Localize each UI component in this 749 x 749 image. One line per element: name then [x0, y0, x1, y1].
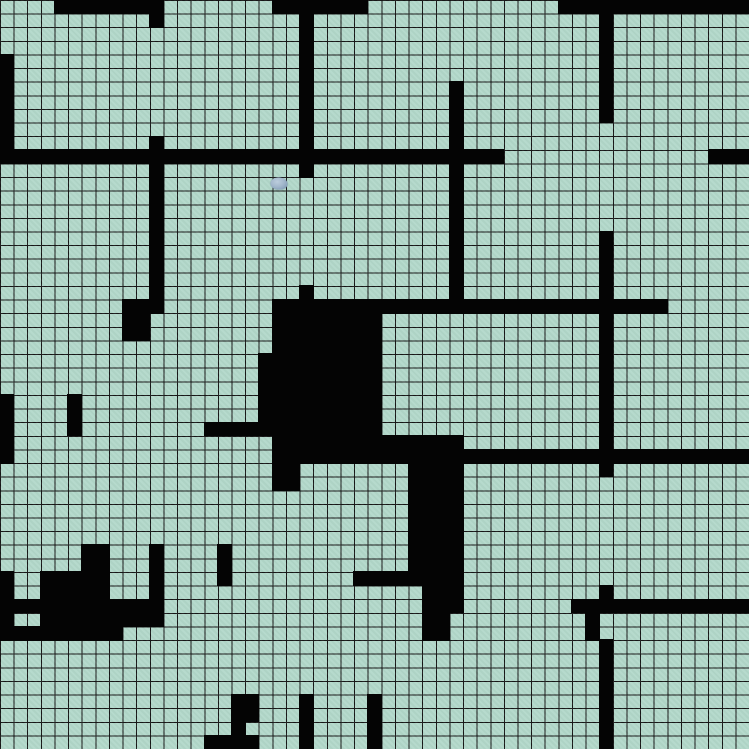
wall-block [149, 258, 164, 273]
wall-block [367, 721, 382, 736]
wall-block [299, 54, 314, 69]
wall-block [599, 231, 614, 246]
wall-block [408, 531, 464, 546]
wall-block [122, 313, 150, 328]
wall-block [0, 95, 14, 110]
wall-block [449, 176, 464, 191]
wall-block [408, 558, 464, 573]
wall-block [422, 612, 450, 627]
wall-block [258, 394, 382, 409]
wall-block [149, 190, 164, 205]
wall-block [449, 190, 464, 205]
wall-block [599, 585, 614, 600]
wall-block [0, 571, 14, 586]
wall-block [558, 0, 749, 14]
wall-block [599, 313, 614, 328]
wall-block [149, 544, 164, 559]
wall-block [67, 422, 82, 437]
wall-block [272, 476, 300, 491]
wall-block [599, 81, 614, 96]
wall-block [54, 0, 164, 14]
wall-block [599, 462, 614, 477]
wall-block [585, 612, 600, 627]
wall-block [408, 462, 464, 477]
wall-block [599, 67, 614, 82]
wall-block [599, 653, 614, 668]
wall-block [449, 245, 464, 260]
wall-block [0, 394, 14, 409]
wall-block [67, 394, 82, 409]
wall-block [217, 558, 232, 573]
wall-block [272, 435, 464, 450]
wall-block [599, 694, 614, 709]
wall-block [149, 136, 164, 151]
wall-block [258, 408, 382, 423]
wall-block [149, 245, 164, 260]
wall-block [204, 422, 382, 437]
wall-block [299, 163, 314, 178]
wall-block [599, 422, 614, 437]
wall-block [449, 95, 464, 110]
wall-block [599, 408, 614, 423]
wall-block [599, 735, 614, 749]
wall-block [231, 694, 259, 709]
wall-block [149, 163, 164, 178]
wall-block [599, 272, 614, 287]
wall-block [40, 612, 164, 627]
wall-block [258, 381, 382, 396]
wall-block [599, 367, 614, 382]
wall-block [299, 122, 314, 137]
map-grid[interactable] [0, 0, 749, 749]
wall-block [149, 204, 164, 219]
wall-block [149, 176, 164, 191]
wall-block [272, 449, 749, 464]
wall-block [422, 626, 450, 641]
wall-block [449, 272, 464, 287]
wall-block [272, 462, 300, 477]
wall-block [599, 13, 614, 28]
wall-block [149, 272, 164, 287]
wall-block [0, 108, 14, 123]
wall-block [449, 285, 464, 300]
wall-block [449, 136, 464, 151]
wall-block [299, 27, 314, 42]
wall-block [367, 708, 382, 723]
wall-block [0, 599, 164, 614]
wall-block [0, 612, 14, 627]
wall-block [0, 54, 14, 69]
wall-block [599, 381, 614, 396]
wall-block [149, 571, 164, 586]
wall-block [449, 204, 464, 219]
wall-block [0, 626, 123, 641]
wall-block [231, 721, 246, 736]
wall-block [272, 313, 382, 328]
wall-block [272, 299, 668, 314]
wall-block [599, 394, 614, 409]
map-viewport [0, 0, 749, 749]
wall-block [408, 476, 464, 491]
wall-block [599, 435, 614, 450]
wall-block [599, 54, 614, 69]
wall-block [0, 136, 14, 151]
wall-block [585, 626, 600, 641]
wall-block [422, 585, 464, 600]
wall-block [272, 340, 382, 355]
wall-block [67, 408, 82, 423]
wall-block [299, 694, 314, 709]
wall-block [299, 136, 314, 151]
wall-block [122, 299, 164, 314]
wall-block [299, 708, 314, 723]
wall-block [217, 571, 232, 586]
wall-block [0, 408, 14, 423]
wall-block [149, 13, 164, 28]
wall-block [299, 81, 314, 96]
wall-block [449, 163, 464, 178]
wall-block [122, 326, 150, 341]
wall-block [599, 353, 614, 368]
creature-token[interactable] [271, 177, 288, 189]
wall-block [599, 708, 614, 723]
wall-block [299, 721, 314, 736]
wall-block [149, 558, 164, 573]
wall-block [149, 585, 164, 600]
wall-block [599, 326, 614, 341]
wall-block [258, 353, 382, 368]
wall-block [599, 40, 614, 55]
wall-block [449, 258, 464, 273]
wall-block [272, 326, 382, 341]
wall-block [367, 735, 382, 749]
wall-block [353, 571, 463, 586]
wall-block [258, 367, 382, 382]
wall-block [81, 544, 109, 559]
wall-block [449, 122, 464, 137]
wall-block [272, 0, 369, 14]
wall-block [408, 517, 464, 532]
wall-block [599, 680, 614, 695]
wall-block [0, 435, 14, 450]
wall-block [708, 149, 749, 164]
wall-block [299, 285, 314, 300]
wall-block [422, 599, 464, 614]
wall-block [599, 721, 614, 736]
wall-block [299, 735, 314, 749]
wall-block [0, 449, 14, 464]
wall-block [81, 558, 109, 573]
wall-block [599, 667, 614, 682]
wall-block [599, 285, 614, 300]
wall-block [408, 544, 464, 559]
wall-block [149, 285, 164, 300]
wall-block [408, 503, 464, 518]
wall-block [0, 67, 14, 82]
wall-block [204, 735, 260, 749]
wall-block [149, 217, 164, 232]
wall-block [0, 122, 14, 137]
wall-block [449, 231, 464, 246]
wall-block [217, 544, 232, 559]
wall-block [449, 217, 464, 232]
wall-block [408, 490, 464, 505]
wall-block [0, 149, 504, 164]
wall-block [0, 81, 14, 96]
wall-block [599, 340, 614, 355]
wall-block [299, 13, 314, 28]
wall-block [299, 95, 314, 110]
wall-block [0, 422, 14, 437]
wall-block [449, 108, 464, 123]
wall-block [571, 599, 749, 614]
wall-block [599, 245, 614, 260]
wall-block [299, 40, 314, 55]
wall-block [599, 258, 614, 273]
wall-block [40, 571, 109, 586]
wall-block [149, 231, 164, 246]
wall-block [40, 585, 109, 600]
wall-block [0, 585, 14, 600]
wall-block [599, 95, 614, 110]
wall-block [231, 708, 259, 723]
wall-block [599, 108, 614, 123]
wall-block [367, 694, 382, 709]
wall-block [599, 27, 614, 42]
wall-block [449, 81, 464, 96]
wall-block [299, 67, 314, 82]
wall-block [299, 108, 314, 123]
wall-block [599, 639, 614, 654]
